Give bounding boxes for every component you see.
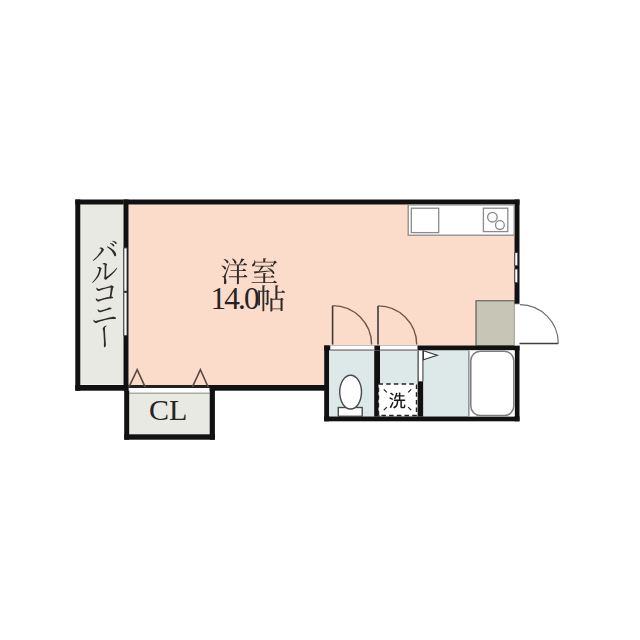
- svg-text:14.0: 14.0: [210, 281, 259, 316]
- svg-text:CL: CL: [149, 393, 187, 426]
